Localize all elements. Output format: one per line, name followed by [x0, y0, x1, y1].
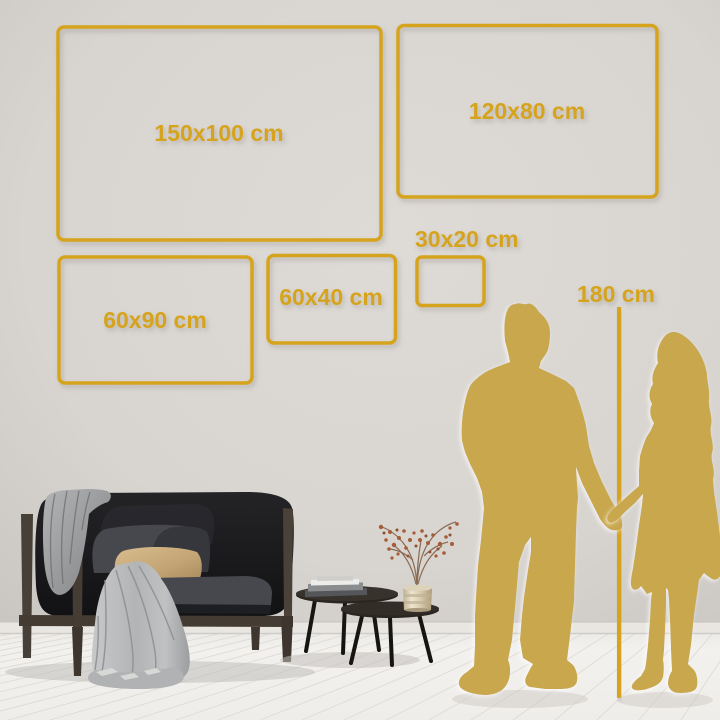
- svg-text:180 cm: 180 cm: [577, 281, 655, 307]
- svg-text:150x100 cm: 150x100 cm: [154, 120, 283, 146]
- svg-text:60x40 cm: 60x40 cm: [279, 284, 383, 310]
- svg-text:60x90 cm: 60x90 cm: [103, 307, 207, 333]
- svg-text:120x80 cm: 120x80 cm: [469, 98, 585, 124]
- svg-text:30x20 cm: 30x20 cm: [415, 226, 519, 252]
